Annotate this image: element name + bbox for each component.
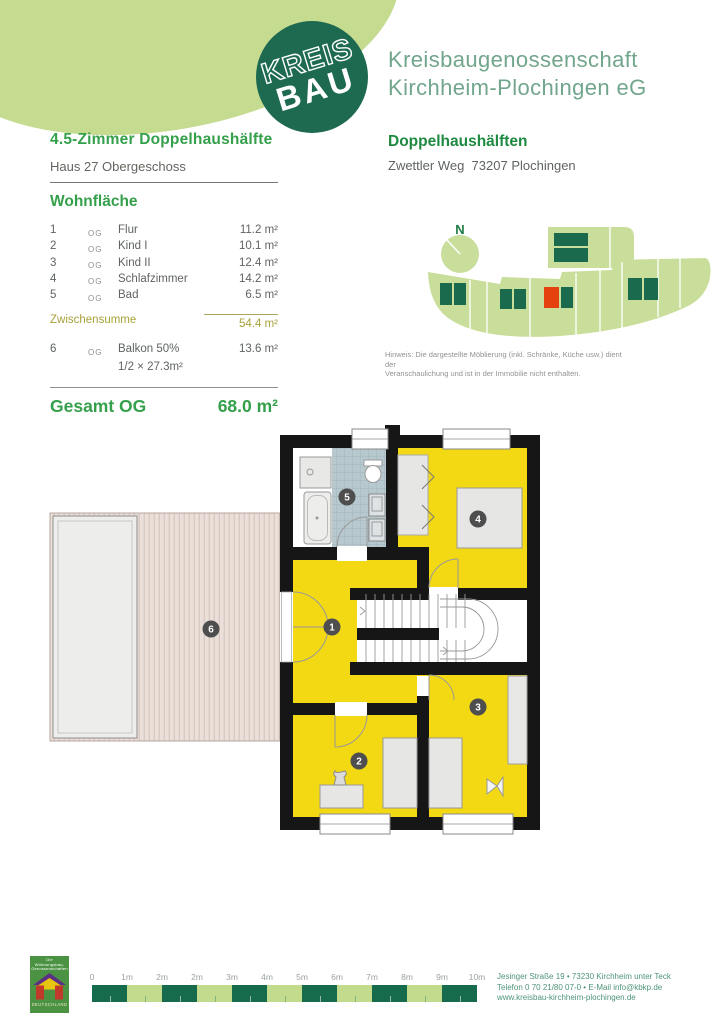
kreisbau-logo: KREIS BAU bbox=[256, 21, 368, 133]
unit-subtitle: Haus 27 Obergeschoss bbox=[50, 159, 278, 183]
row-floor: OG bbox=[88, 343, 118, 359]
furnishing-disclaimer: Hinweis: Die dargestellte Möblierung (in… bbox=[385, 350, 625, 379]
bed-single bbox=[383, 738, 417, 808]
row-area: 14.2 m² bbox=[239, 273, 278, 289]
table-row: 4 OG Schlafzimmer 14.2 m² bbox=[50, 273, 278, 289]
total-row: Gesamt OG 68.0 m² bbox=[50, 387, 278, 417]
row-number: 3 bbox=[50, 257, 88, 273]
site-house bbox=[628, 278, 642, 300]
balcony-door bbox=[282, 592, 292, 662]
disclaimer-line1: Hinweis: Die dargestellte Möblierung (in… bbox=[385, 350, 622, 369]
row-room-name: Balkon 50% bbox=[118, 343, 239, 359]
footer-website: www.kreisbau-kirchheim-plochingen.de bbox=[497, 993, 671, 1004]
company-name: Kreisbaugenossenschaft Kirchheim-Plochin… bbox=[388, 46, 647, 102]
living-area-panel: 4.5-Zimmer Doppelhaushälfte Haus 27 Ober… bbox=[50, 131, 278, 417]
table-row: 2 OG Kind I 10.1 m² bbox=[50, 240, 278, 256]
site-plan: N bbox=[428, 222, 711, 337]
site-house bbox=[554, 248, 588, 262]
row-room-name: Flur bbox=[118, 224, 240, 240]
north-label: N bbox=[455, 222, 464, 237]
scale-bar: 0 1m 2m 2m 3m 4m 5m 6m 7m 8m 9m 10m bbox=[92, 972, 492, 1002]
emblem-country: DEUTSCHLAND bbox=[32, 1002, 68, 1007]
desk bbox=[320, 785, 363, 808]
footer-contact: Jesinger Straße 19 • 73230 Kirchheim unt… bbox=[497, 972, 671, 1004]
scale-label: 6m bbox=[331, 972, 343, 982]
scale-segments bbox=[92, 985, 492, 1002]
scale-label: 5m bbox=[296, 972, 308, 982]
row-room-name: Kind II bbox=[118, 257, 239, 273]
row-number: 5 bbox=[50, 289, 88, 305]
scale-label: 4m bbox=[261, 972, 273, 982]
balcony-row: 6 OG Balkon 50% 13.6 m² bbox=[50, 343, 278, 359]
row-area: 12.4 m² bbox=[239, 257, 278, 273]
company-name-line1: Kreisbaugenossenschaft bbox=[388, 46, 647, 74]
scale-label: 9m bbox=[436, 972, 448, 982]
row-floor: OG bbox=[88, 257, 118, 273]
total-value: 68.0 m² bbox=[218, 396, 278, 417]
row-area: 6.5 m² bbox=[245, 289, 278, 305]
site-house bbox=[454, 283, 466, 305]
site-house bbox=[514, 289, 526, 309]
scale-labels: 0 1m 2m 2m 3m 4m 5m 6m 7m 8m 9m 10m bbox=[92, 972, 492, 983]
badge-schlafzimmer-number: 4 bbox=[475, 515, 481, 526]
balcony bbox=[50, 513, 280, 741]
badge-kind2-number: 3 bbox=[475, 703, 481, 714]
company-name-line2: Kirchheim-Plochingen eG bbox=[388, 74, 647, 102]
section-title: Wohnfläche bbox=[50, 193, 278, 211]
wohnungsbau-emblem: Die Wohnungsbau- Genossenschaften DEUTSC… bbox=[30, 956, 69, 1013]
site-house bbox=[500, 289, 512, 309]
badge-flur-number: 1 bbox=[329, 623, 335, 634]
badge-bad-number: 5 bbox=[344, 493, 350, 504]
table-row: 1 OG Flur 11.2 m² bbox=[50, 224, 278, 240]
table-row: 3 OG Kind II 12.4 m² bbox=[50, 257, 278, 273]
scale-label: 0 bbox=[90, 972, 95, 982]
row-room-name: Schlafzimmer bbox=[118, 273, 239, 289]
row-number: 2 bbox=[50, 240, 88, 256]
badge-balkon-number: 6 bbox=[208, 625, 214, 636]
row-number: 4 bbox=[50, 273, 88, 289]
scale-label: 2m bbox=[156, 972, 168, 982]
row-area: 11.2 m² bbox=[240, 224, 278, 240]
scale-label: 2m bbox=[191, 972, 203, 982]
scale-label: 3m bbox=[226, 972, 238, 982]
row-floor: OG bbox=[88, 273, 118, 289]
toilet bbox=[365, 466, 381, 483]
kreisbau-logo-text: KREIS BAU bbox=[259, 35, 366, 118]
row-floor: OG bbox=[88, 289, 118, 305]
total-label: Gesamt OG bbox=[50, 396, 218, 417]
row-room-name: Kind I bbox=[118, 240, 239, 256]
site-house bbox=[644, 278, 658, 300]
row-area: 13.6 m² bbox=[239, 343, 278, 359]
project-address: Zwettler Weg 73207 Plochingen bbox=[388, 158, 576, 173]
badge-kind1-number: 2 bbox=[356, 757, 362, 768]
emblem-house-icon bbox=[33, 972, 66, 1001]
wardrobe bbox=[508, 676, 527, 764]
scale-label: 1m bbox=[121, 972, 133, 982]
site-house bbox=[554, 233, 588, 246]
disclaimer-line2: Veranschaulichung und ist in der Immobil… bbox=[385, 369, 581, 378]
balcony-note: 1/2 × 27.3m² bbox=[118, 360, 278, 374]
balcony-planter bbox=[53, 516, 137, 738]
site-house bbox=[561, 287, 573, 308]
site-house bbox=[440, 283, 452, 305]
subtotal-label: Zwischensumme bbox=[50, 314, 204, 332]
bed-single bbox=[429, 738, 462, 808]
project-panel: Doppelhaushälften Zwettler Weg 73207 Plo… bbox=[388, 133, 576, 173]
scale-label: 8m bbox=[401, 972, 413, 982]
footer-phone-email: Telefon 0 70 21/80 07-0 • E-Mail info@kb… bbox=[497, 983, 671, 994]
table-row: 5 OG Bad 6.5 m² bbox=[50, 289, 278, 305]
row-floor: OG bbox=[88, 224, 118, 240]
brochure-page: KREIS BAU Kreisbaugenossenschaft Kirchhe… bbox=[0, 0, 724, 1024]
scale-label: 10m bbox=[469, 972, 486, 982]
plant-icon bbox=[334, 771, 347, 785]
unit-title: 4.5-Zimmer Doppelhaushälfte bbox=[50, 131, 278, 149]
row-area: 10.1 m² bbox=[239, 240, 278, 256]
bed-double bbox=[457, 488, 522, 548]
scale-label: 7m bbox=[366, 972, 378, 982]
washing-machine bbox=[300, 457, 331, 488]
project-title: Doppelhaushälften bbox=[388, 133, 576, 151]
footer-street: Jesinger Straße 19 • 73230 Kirchheim unt… bbox=[497, 972, 671, 983]
row-number: 6 bbox=[50, 343, 88, 359]
row-number: 1 bbox=[50, 224, 88, 240]
subtotal-value: 54.4 m² bbox=[204, 314, 278, 332]
row-floor: OG bbox=[88, 240, 118, 256]
site-house-highlighted bbox=[544, 287, 559, 308]
row-room-name: Bad bbox=[118, 289, 245, 305]
subtotal-row: Zwischensumme 54.4 m² bbox=[50, 314, 278, 332]
